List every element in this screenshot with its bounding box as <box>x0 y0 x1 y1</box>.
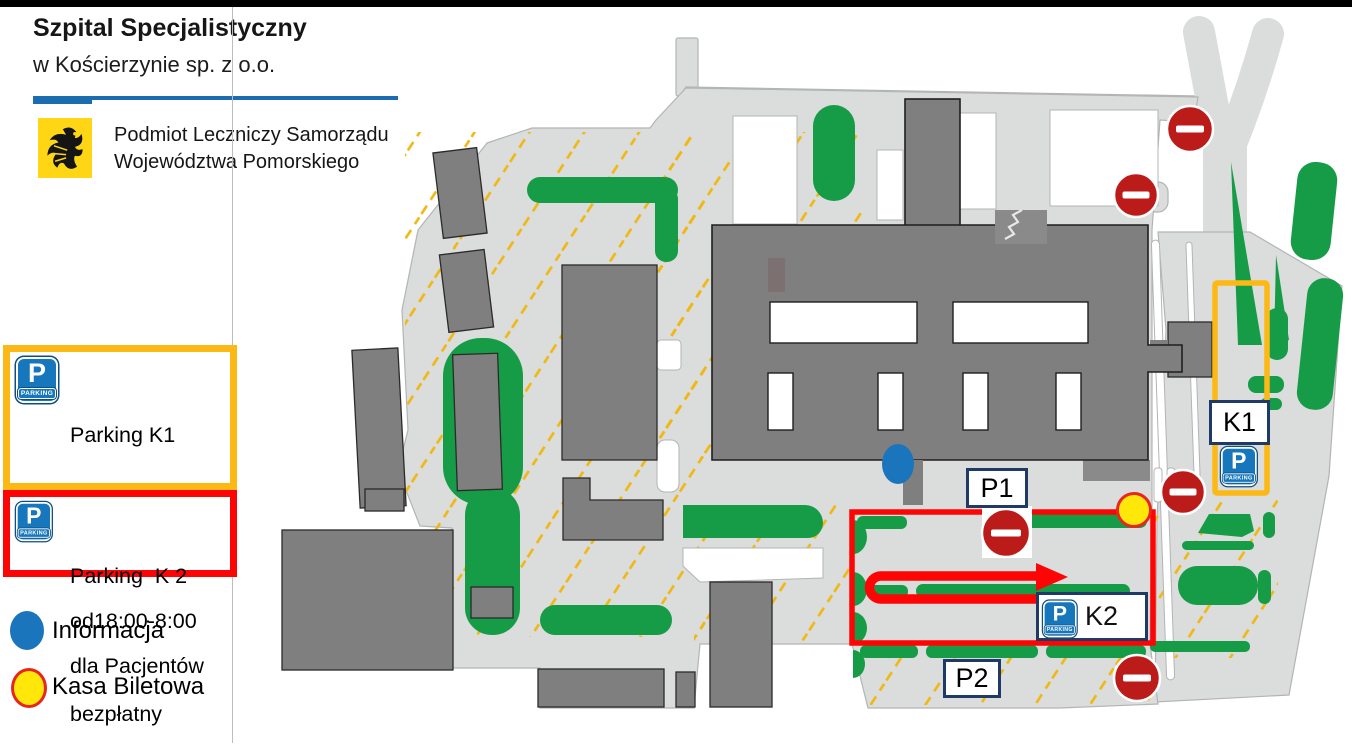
p2-label: P2 <box>955 663 988 694</box>
parking-sign-letter: P <box>26 504 41 529</box>
no-entry-icon <box>1114 173 1158 217</box>
no-entry-icon <box>1161 470 1205 514</box>
org-line-1: Podmiot Leczniczy Samorządu <box>114 122 389 149</box>
legend-parking-k2: P PARKING Parking K 2 dla Pacjentów <box>3 490 237 577</box>
no-entry-icon <box>1167 106 1213 152</box>
parking-sign-letter: P <box>1231 449 1246 474</box>
legend-k1-line1: Parking K1 <box>70 420 204 451</box>
parking-sign-caption: PARKING <box>18 388 56 399</box>
legend-k2-line1: Parking K 2 <box>70 561 204 591</box>
organization-text: Podmiot Leczniczy Samorządu Województwa … <box>114 122 389 176</box>
p1-label: P1 <box>980 473 1013 504</box>
org-line-2: Województwa Pomorskiego <box>114 149 389 176</box>
stairs-pad <box>995 210 1047 244</box>
parking-sign-icon: P PARKING <box>16 357 58 403</box>
map-label-k1: K1 <box>1209 400 1270 445</box>
legend-parking-k1: P PARKING Parking K1 dla Pacjentów od18:… <box>3 345 237 490</box>
informacja-dot-icon <box>882 444 914 484</box>
parking-sign-caption: PARKING <box>18 528 51 537</box>
no-entry-icon <box>1114 655 1160 701</box>
parking-sign-letter: P <box>28 359 46 388</box>
parking-sign-icon: P PARKING <box>1221 447 1263 493</box>
accent-line <box>33 96 92 104</box>
hospital-campus-map-page: P1 P2 K1 P PARKING K2 P PARKING Szpital … <box>0 0 1352 756</box>
accent-line-thin <box>92 96 398 100</box>
kasa-biletowa-dot-icon <box>11 668 47 708</box>
parking-sign-caption: PARKING <box>1223 473 1256 482</box>
map-label-k2: P PARKING K2 <box>1036 592 1148 641</box>
parking-sign-icon: P PARKING <box>16 502 58 548</box>
map-label-p2: P2 <box>943 659 1001 698</box>
legend-informacja-label: Informacja <box>52 617 164 645</box>
page-subtitle: w Kościerzynie sp. z o.o. <box>33 52 275 78</box>
parking-sign-icon: P PARKING <box>1043 596 1079 638</box>
informacja-dot-icon <box>10 611 44 650</box>
parking-sign-caption: PARKING <box>1044 625 1075 634</box>
pomorskie-griffin-logo-icon <box>38 118 92 178</box>
page-title: Szpital Specjalistyczny <box>33 14 307 43</box>
k1-label: K1 <box>1223 407 1256 438</box>
legend-kasa-label: Kasa Biletowa <box>52 673 204 701</box>
map-label-p1: P1 <box>966 468 1028 508</box>
parking-sign-letter: P <box>1053 602 1067 625</box>
k2-label: K2 <box>1085 601 1118 632</box>
kasa-biletowa-dot-icon <box>1118 494 1151 527</box>
no-entry-icon <box>982 509 1030 557</box>
